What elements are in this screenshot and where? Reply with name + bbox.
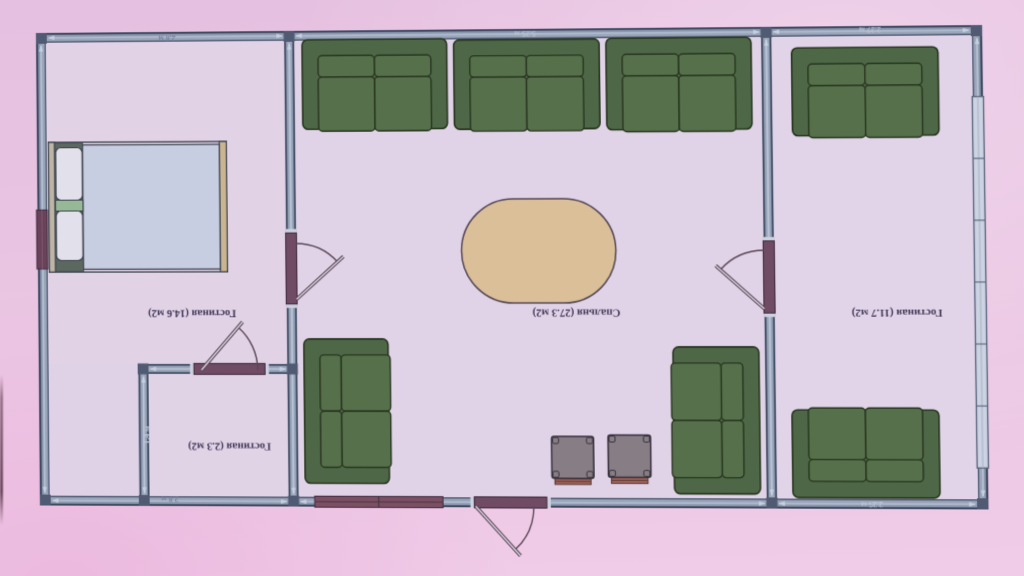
svg-text:5.25 м: 5.25 м xyxy=(514,29,536,38)
svg-text:Гостиная (11.7 м2): Гостиная (11.7 м2) xyxy=(851,306,942,317)
svg-text:2.8 м: 2.8 м xyxy=(158,34,176,43)
svg-text:2.25 м: 2.25 м xyxy=(860,500,883,509)
svg-text:Гостиная (2.3 м2): Гостиная (2.3 м2) xyxy=(188,440,271,451)
svg-text:Гостиная (14.6 м2): Гостиная (14.6 м2) xyxy=(148,307,236,318)
svg-text:2.27 м: 2.27 м xyxy=(858,25,881,34)
svg-text:2.8 м: 2.8 м xyxy=(161,495,179,504)
svg-text:Спальня (27.3 м2): Спальня (27.3 м2) xyxy=(532,306,621,317)
svg-text:1.4 м: 1.4 м xyxy=(142,425,151,444)
